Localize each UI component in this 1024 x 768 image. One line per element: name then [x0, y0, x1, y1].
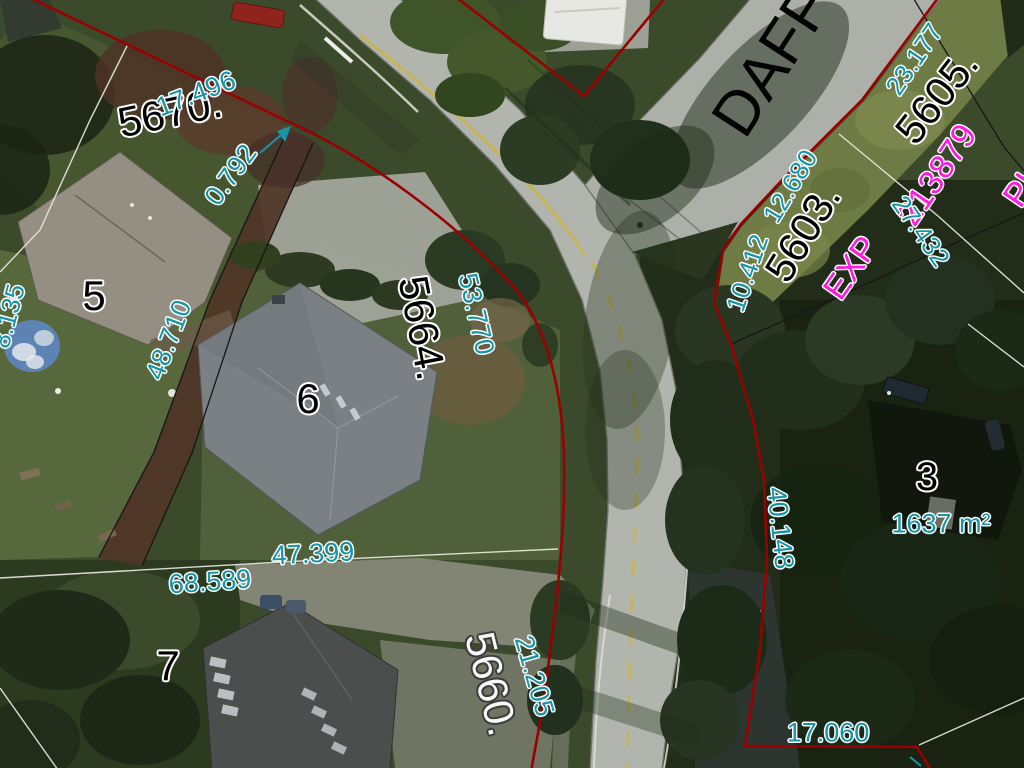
trailer	[543, 0, 627, 45]
aerial-basemap	[0, 0, 1024, 768]
map-viewport[interactable]: DAFF5670.17.4960.7928.135548.7105664.53.…	[0, 0, 1024, 768]
